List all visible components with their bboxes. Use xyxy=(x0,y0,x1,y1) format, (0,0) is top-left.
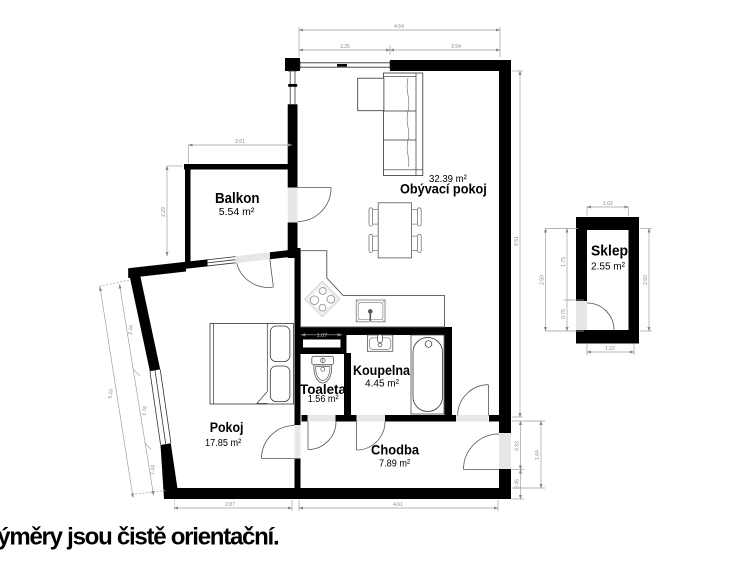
svg-text:4.64: 4.64 xyxy=(394,24,404,30)
svg-text:3.25: 3.25 xyxy=(340,44,350,50)
svg-text:2.50: 2.50 xyxy=(643,275,649,285)
svg-text:Koupelna: Koupelna xyxy=(353,363,410,378)
svg-text:0.45: 0.45 xyxy=(515,479,521,489)
svg-text:2.50: 2.50 xyxy=(540,275,546,285)
svg-text:Obývací pokoj: Obývací pokoj xyxy=(400,181,487,197)
svg-text:2.87: 2.87 xyxy=(225,502,235,508)
svg-text:Výměry jsou čistě orientační.: Výměry jsou čistě orientační. xyxy=(0,524,279,551)
svg-text:2.61: 2.61 xyxy=(235,139,245,145)
svg-text:8.51: 8.51 xyxy=(514,236,520,246)
svg-text:0.93: 0.93 xyxy=(515,441,521,451)
svg-text:Sklep: Sklep xyxy=(591,244,628,260)
svg-text:0.75: 0.75 xyxy=(561,309,567,319)
svg-text:17.85 m²: 17.85 m² xyxy=(205,438,242,449)
svg-text:7.89 m²: 7.89 m² xyxy=(379,459,411,470)
svg-text:2.29: 2.29 xyxy=(161,207,167,217)
svg-text:5.54 m²: 5.54 m² xyxy=(219,207,255,218)
svg-text:1.07: 1.07 xyxy=(317,333,328,339)
svg-text:1.75: 1.75 xyxy=(561,257,567,267)
svg-text:4.61: 4.61 xyxy=(393,502,403,508)
svg-text:3.54: 3.54 xyxy=(451,44,461,50)
svg-text:Balkon: Balkon xyxy=(215,191,260,207)
svg-text:1.02: 1.02 xyxy=(603,201,613,207)
svg-text:2.55 m²: 2.55 m² xyxy=(591,262,626,273)
svg-text:Chodba: Chodba xyxy=(371,442,419,458)
svg-text:1.56 m²: 1.56 m² xyxy=(308,394,339,405)
svg-text:4.45 m²: 4.45 m² xyxy=(365,379,400,390)
svg-text:Pokoj: Pokoj xyxy=(210,420,244,435)
svg-text:1.64: 1.64 xyxy=(535,450,541,460)
svg-text:1.22: 1.22 xyxy=(605,346,615,352)
